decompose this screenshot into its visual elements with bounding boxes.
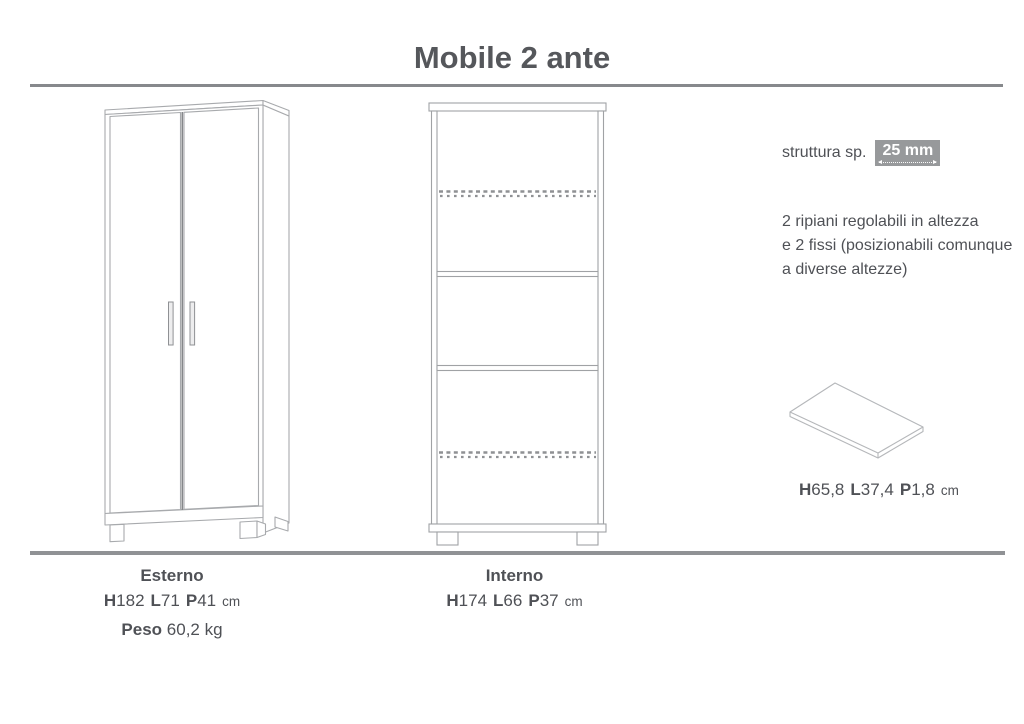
structure-thickness-badge: 25 mm — [875, 140, 940, 166]
shelves-note: 2 ripiani regolabili in altezza e 2 fiss… — [782, 210, 1012, 282]
structure-thickness-label: struttura sp. — [782, 140, 866, 165]
interno-title: Interno — [432, 566, 597, 586]
wardrobe-foot-left — [110, 524, 124, 541]
footer-divider — [30, 551, 1005, 555]
shelves-note-line-3: a diverse altezze) — [782, 258, 1012, 282]
interior-fixed-shelf-upper — [437, 272, 598, 277]
dim-val-p: 41 — [197, 591, 216, 610]
dim-val-p: 37 — [540, 591, 559, 610]
interior-left-wall — [432, 111, 438, 524]
dim-val-h: 182 — [116, 591, 144, 610]
shelf-panel-top-face — [790, 383, 923, 453]
dim-val-l: 66 — [503, 591, 522, 610]
weight-label: Peso — [121, 620, 162, 639]
shelves-note-line-1: 2 ripiani regolabili in altezza — [782, 210, 1012, 234]
structure-thickness-row: struttura sp. 25 mm — [782, 140, 940, 166]
shelf-panel-dimensions: H65,8L37,4P1,8cm — [799, 480, 959, 500]
esterno-dimensions: H182L71P41cm — [92, 591, 252, 611]
interior-foot-left — [437, 532, 458, 545]
dim-val-l: 71 — [161, 591, 180, 610]
dim-val-l: 37,4 — [861, 480, 894, 499]
wardrobe-right-handle — [190, 302, 195, 345]
wardrobe-side-panel — [263, 105, 289, 533]
dim-unit: cm — [222, 594, 240, 609]
interior-bottom-panel — [429, 524, 606, 532]
interno-dimensions: H174L66P37cm — [432, 591, 597, 611]
wardrobe-left-handle — [169, 302, 174, 345]
weight-line: Peso 60,2 kg — [92, 620, 252, 640]
wardrobe-foot-right-front — [240, 521, 257, 539]
wardrobe-foot-right-side — [257, 521, 266, 538]
dim-key-h: H — [799, 480, 811, 499]
dimension-arrow-icon — [879, 162, 936, 163]
esterno-title: Esterno — [92, 566, 252, 586]
interior-right-wall — [598, 111, 604, 524]
dim-key-l: L — [493, 591, 503, 610]
dim-unit: cm — [941, 483, 959, 498]
dim-key-p: P — [186, 591, 197, 610]
interior-fixed-shelf-lower — [437, 366, 598, 371]
dim-key-h: H — [446, 591, 458, 610]
dim-val-h: 65,8 — [811, 480, 844, 499]
dim-val-h: 174 — [459, 591, 487, 610]
dim-val-p: 1,8 — [911, 480, 935, 499]
interior-top-panel — [429, 103, 606, 111]
weight-value: 60,2 kg — [167, 620, 223, 639]
shelf-panel-figure — [780, 375, 935, 465]
interior-foot-right — [577, 532, 598, 545]
dim-key-p: P — [900, 480, 911, 499]
dim-key-l: L — [850, 480, 860, 499]
wardrobe-exterior-figure — [95, 95, 305, 555]
dim-key-p: P — [528, 591, 539, 610]
cabinet-interior-figure — [418, 95, 618, 555]
esterno-spec-block: Esterno H182L71P41cm Peso 60,2 kg — [92, 566, 252, 640]
dim-key-l: L — [151, 591, 161, 610]
structure-thickness-value: 25 mm — [882, 142, 933, 159]
dim-unit: cm — [565, 594, 583, 609]
page-title: Mobile 2 ante — [0, 40, 1024, 76]
dim-key-h: H — [104, 591, 116, 610]
interno-spec-block: Interno H174L66P37cm — [432, 566, 597, 611]
shelves-note-line-2: e 2 fissi (posizionabili comunque — [782, 234, 1012, 258]
header-divider — [30, 84, 1003, 87]
wardrobe-right-door — [184, 108, 259, 509]
